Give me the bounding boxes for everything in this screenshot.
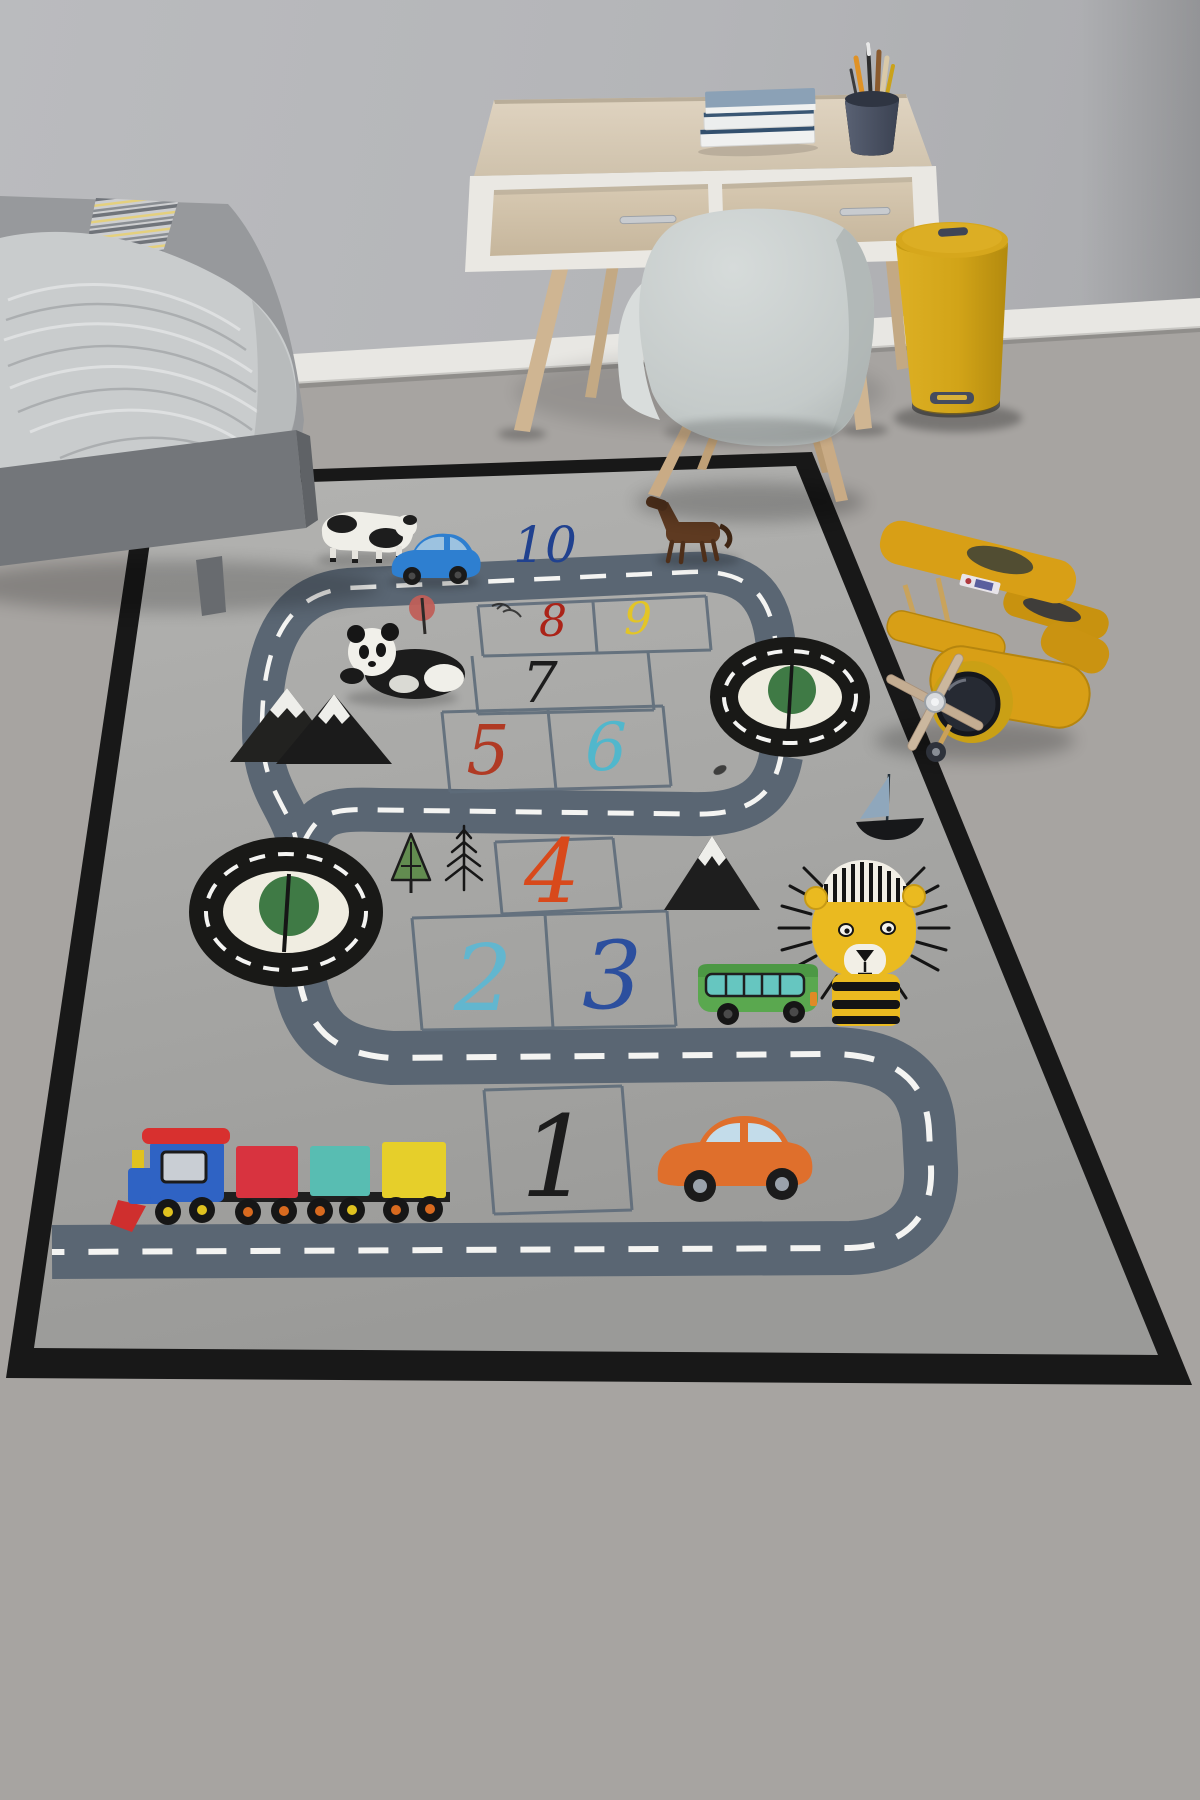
rug-number-10: 10 <box>513 516 577 574</box>
train-wagon-teal <box>310 1146 370 1196</box>
trash-bin <box>894 222 1022 432</box>
toy-airplane <box>875 516 1114 762</box>
train-wagon-yellow <box>382 1142 446 1198</box>
roundabout-left <box>206 854 366 970</box>
roundabout-right <box>724 651 856 743</box>
rug-number-8: 8 <box>539 596 567 647</box>
rug-number-5: 5 <box>466 712 509 791</box>
book-stack <box>696 88 818 158</box>
room-photo: 1 2 3 4 5 6 7 8 9 10 <box>0 0 1200 1800</box>
rug-number-7: 7 <box>522 651 558 716</box>
pencil-cup <box>845 44 899 156</box>
rug-number-2: 2 <box>453 925 513 1032</box>
rug-number-6: 6 <box>585 709 627 786</box>
train-wagon-red <box>236 1146 298 1198</box>
desk-handle-left <box>620 215 676 223</box>
desk-handle-right <box>840 207 890 215</box>
rug-number-9: 9 <box>624 594 652 645</box>
rug-number-3: 3 <box>582 922 642 1031</box>
scene-drawing: 1 2 3 4 5 6 7 8 9 10 <box>0 0 1200 1800</box>
rug-number-4: 4 <box>523 820 580 923</box>
bin-body <box>896 244 1008 415</box>
rug-number-1: 1 <box>520 1093 591 1223</box>
